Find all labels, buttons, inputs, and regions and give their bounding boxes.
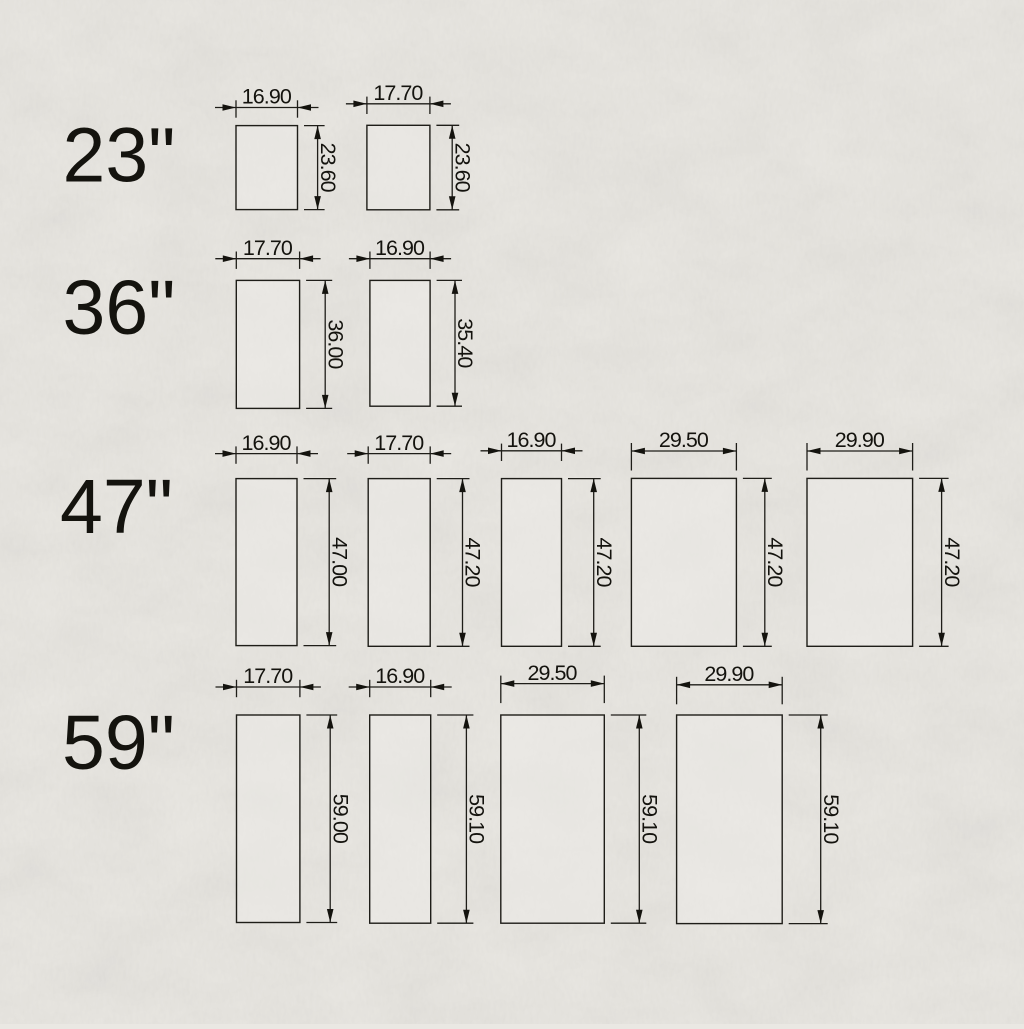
svg-text:23.60: 23.60 xyxy=(450,143,474,193)
svg-text:59.00: 59.00 xyxy=(328,794,352,844)
svg-text:47.20: 47.20 xyxy=(592,538,616,588)
svg-text:23.60: 23.60 xyxy=(316,143,340,193)
svg-text:47.00: 47.00 xyxy=(327,537,351,587)
svg-text:23": 23" xyxy=(63,112,176,198)
svg-text:59.10: 59.10 xyxy=(819,794,843,844)
svg-text:47.20: 47.20 xyxy=(940,537,964,587)
svg-text:16.90: 16.90 xyxy=(242,85,292,109)
svg-text:16.90: 16.90 xyxy=(375,664,425,688)
svg-text:59.10: 59.10 xyxy=(465,794,489,844)
svg-text:29.50: 29.50 xyxy=(659,428,709,452)
svg-text:36.00: 36.00 xyxy=(323,319,347,369)
svg-text:47.20: 47.20 xyxy=(763,537,787,587)
svg-text:35.40: 35.40 xyxy=(453,318,477,368)
svg-text:16.90: 16.90 xyxy=(507,428,557,452)
svg-text:17.70: 17.70 xyxy=(373,81,423,105)
svg-text:47.20: 47.20 xyxy=(461,538,485,588)
svg-text:29.90: 29.90 xyxy=(704,662,754,686)
svg-text:16.90: 16.90 xyxy=(242,431,292,455)
svg-text:17.70: 17.70 xyxy=(374,431,424,455)
svg-text:17.70: 17.70 xyxy=(243,664,293,688)
svg-text:59.10: 59.10 xyxy=(638,794,662,844)
svg-text:59": 59" xyxy=(62,700,175,786)
svg-text:36": 36" xyxy=(63,265,176,351)
svg-text:29.50: 29.50 xyxy=(528,661,578,685)
svg-text:29.90: 29.90 xyxy=(835,428,885,452)
svg-text:17.70: 17.70 xyxy=(243,236,293,260)
svg-text:47": 47" xyxy=(60,464,173,550)
svg-text:16.90: 16.90 xyxy=(375,236,425,260)
